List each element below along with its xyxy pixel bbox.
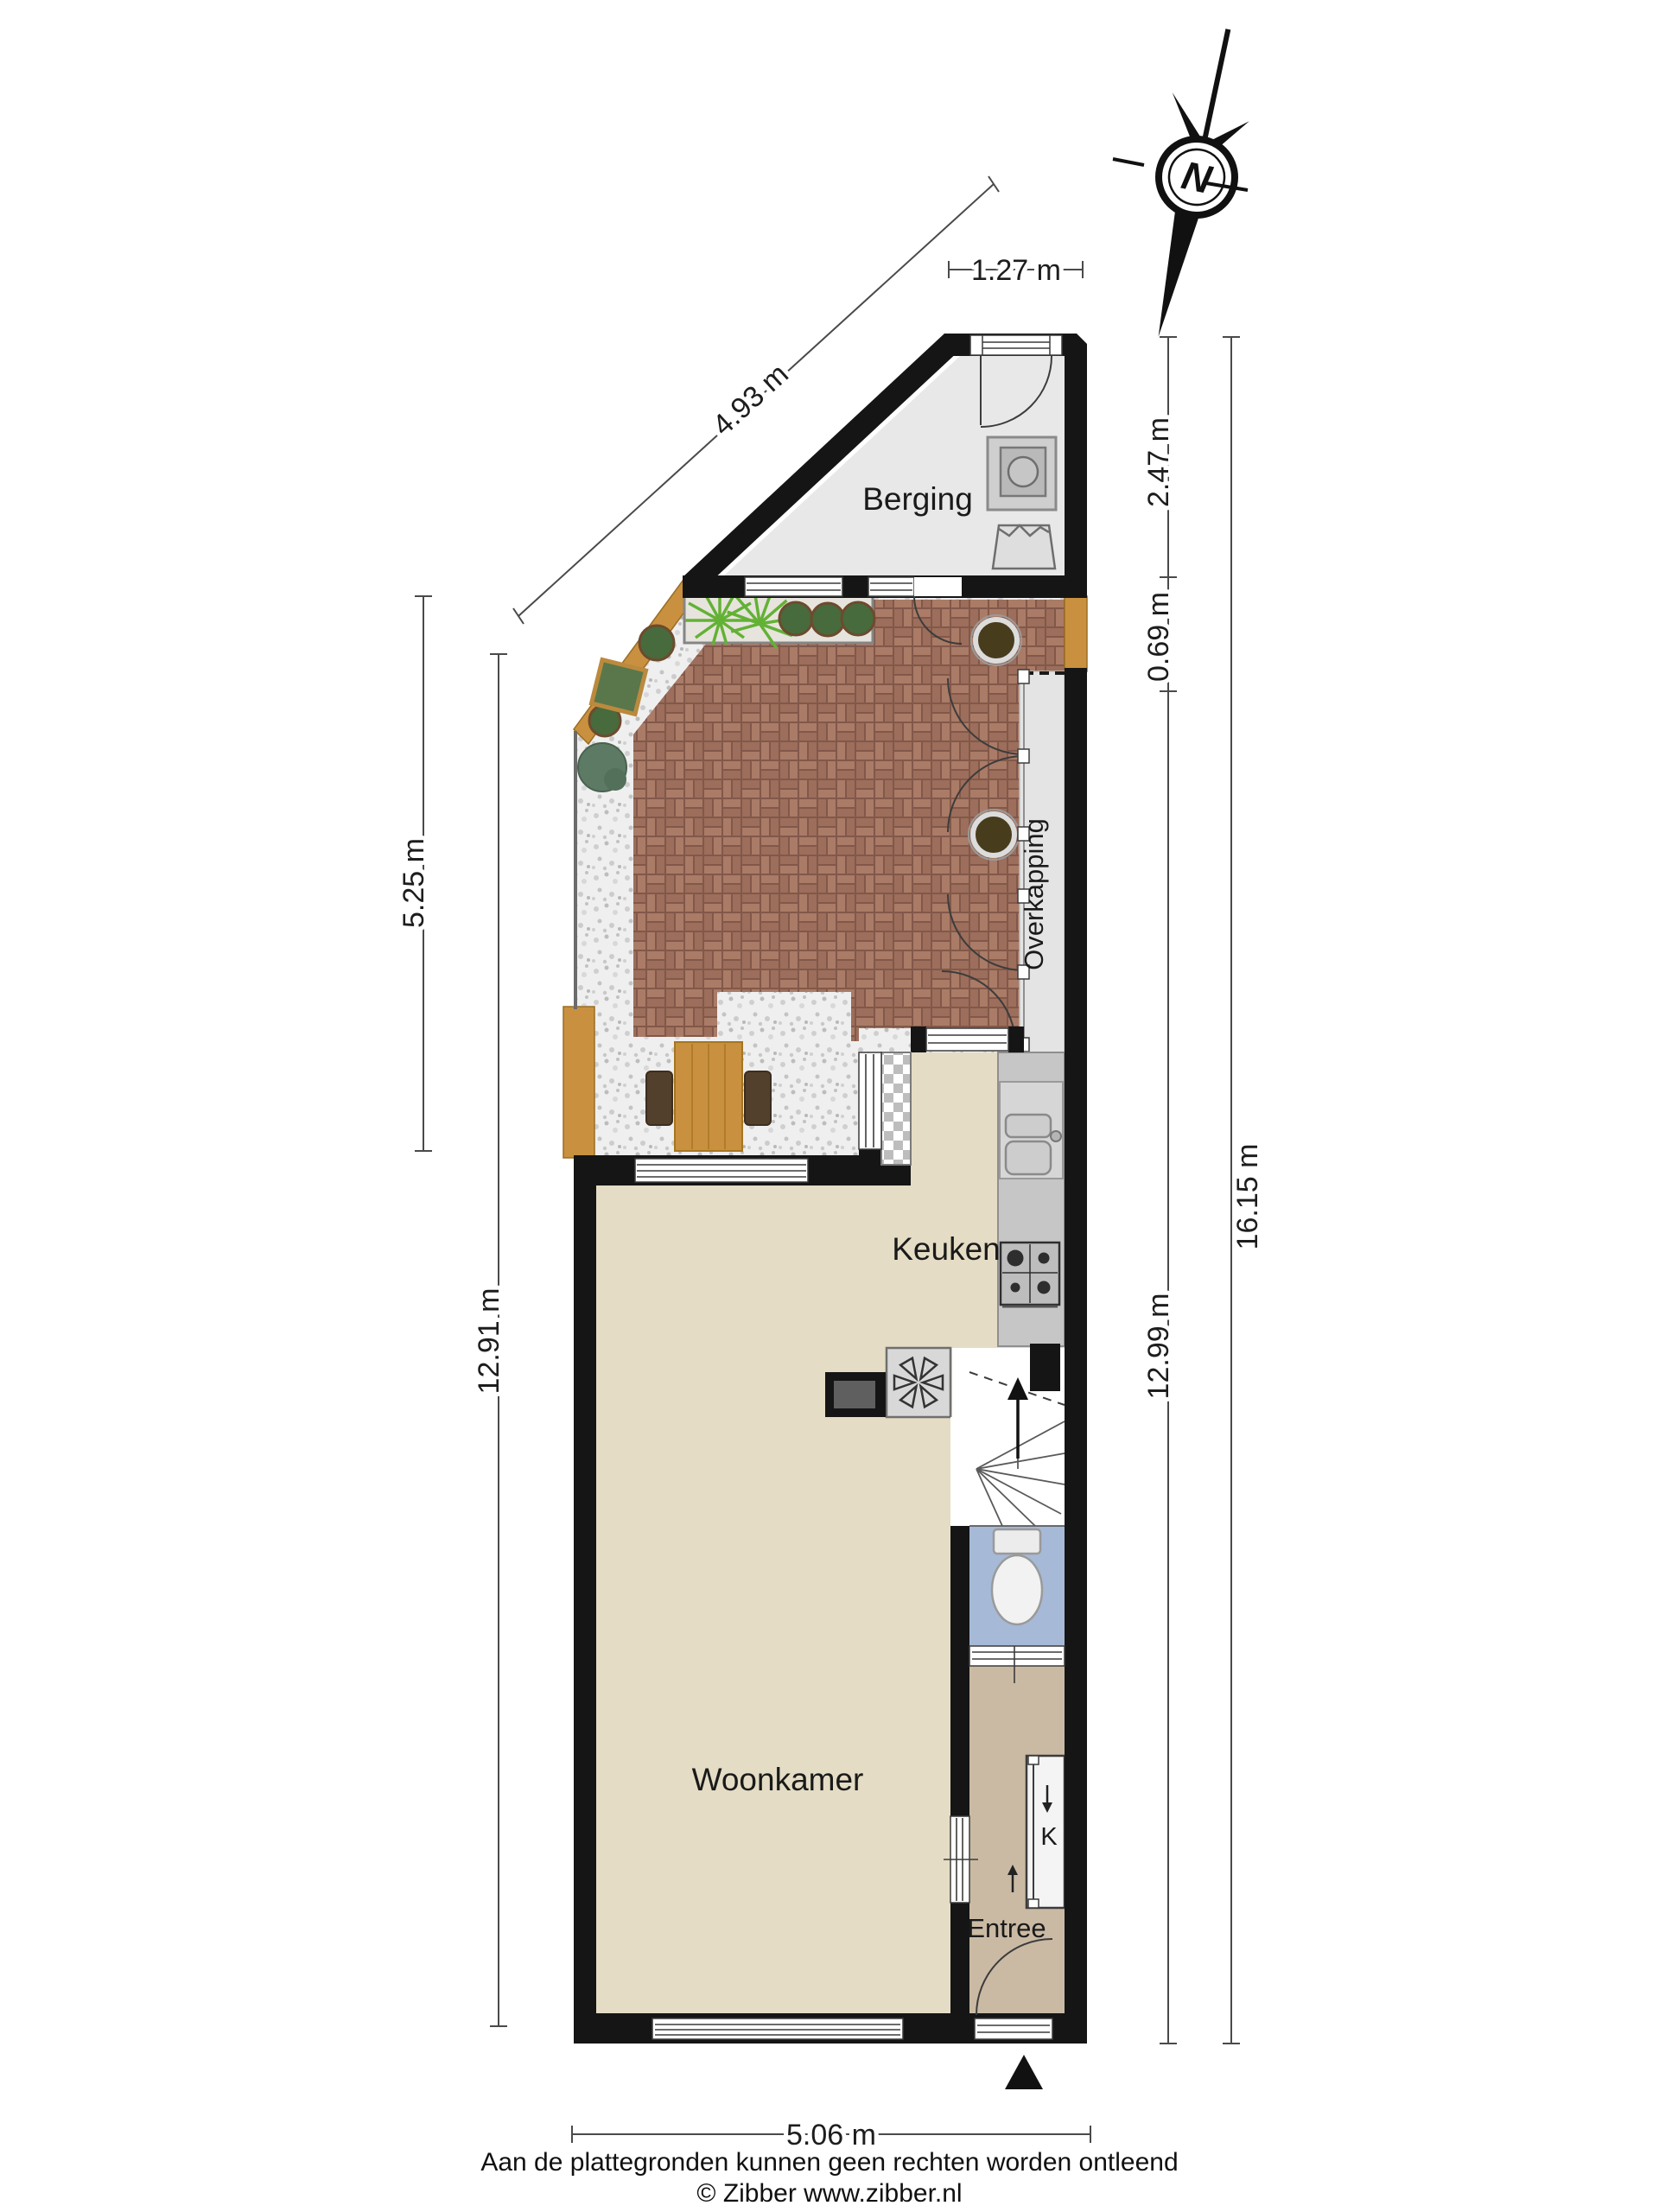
entrance-arrow-icon (1005, 2055, 1043, 2089)
chimney-duct (834, 1381, 875, 1408)
garden-window (868, 577, 914, 596)
floorplan-page: K (0, 0, 1659, 2212)
dim-house-width: 5.06 m (786, 2119, 876, 2152)
garden-window (745, 577, 842, 596)
room-label-berging: Berging (862, 481, 973, 517)
kitchen-side-window (859, 1052, 881, 1149)
living-front-window (652, 2018, 903, 2039)
closet-label: K (1040, 1823, 1058, 1851)
chair (745, 1071, 771, 1125)
chair (646, 1071, 672, 1125)
toilet-tank (994, 1529, 1040, 1554)
dim-gap-right: 0.69 m (1142, 592, 1175, 682)
kitchen-garden-window (926, 1028, 1008, 1051)
faucet-icon (1051, 1131, 1061, 1141)
dim-total-right: 16.15 m (1231, 1144, 1264, 1250)
dim-house-right: 12.99 m (1142, 1294, 1175, 1400)
plant-pot-icon (971, 615, 1021, 665)
laundry-basket-icon (993, 525, 1055, 569)
floor-woonkamer (596, 1185, 952, 2013)
berging-door (977, 335, 1055, 355)
hall-left-wall (950, 1526, 969, 1816)
berging-garden-door (914, 577, 962, 596)
dim-berging-height: 2.47 m (1142, 417, 1175, 507)
plant-pot-icon (969, 810, 1019, 860)
berging-right-wall (1065, 334, 1087, 596)
footer-credit: © Zibber www.zibber.nl (696, 2179, 962, 2208)
dim-garden-left: 5.25 m (397, 838, 430, 928)
room-label-entree: Entree (967, 1913, 1046, 1943)
front-door (975, 2018, 1052, 2039)
sink-basin (1006, 1115, 1051, 1137)
toilet-fixture (992, 1529, 1042, 1624)
washing-machine-icon (988, 437, 1056, 510)
floorplan-canvas: K (0, 0, 1659, 2212)
toilet-bowl-icon (992, 1555, 1042, 1624)
toilet-door (969, 1646, 1065, 1666)
checkered-wall (881, 1052, 911, 1165)
compass-icon: N (1113, 21, 1267, 346)
room-label-overkapping: Overkapping (1019, 818, 1049, 970)
kitchen-counter (998, 1052, 1065, 1346)
dim-plot-diagonal: 4.93 m (706, 358, 794, 442)
square-planter-icon (591, 659, 645, 714)
shrub-icon (578, 743, 626, 791)
footer-disclaimer: Aan de plattegronden kunnen geen rechten… (480, 2148, 1178, 2177)
dim-house-left: 12.91 m (473, 1288, 505, 1395)
left-exterior-wall (574, 1155, 596, 2044)
kitchen-top-wall (911, 1027, 926, 1052)
mv-unit (887, 1348, 950, 1417)
interior-doorway (950, 1417, 969, 1526)
room-label-keuken: Keuken (892, 1231, 1001, 1267)
dim-berging-width: 1.27 m (971, 254, 1061, 287)
right-exterior-wall (1065, 668, 1087, 2044)
stove-icon (1001, 1243, 1059, 1306)
sink-basin (1006, 1141, 1051, 1174)
room-label-woonkamer: Woonkamer (692, 1762, 864, 1797)
